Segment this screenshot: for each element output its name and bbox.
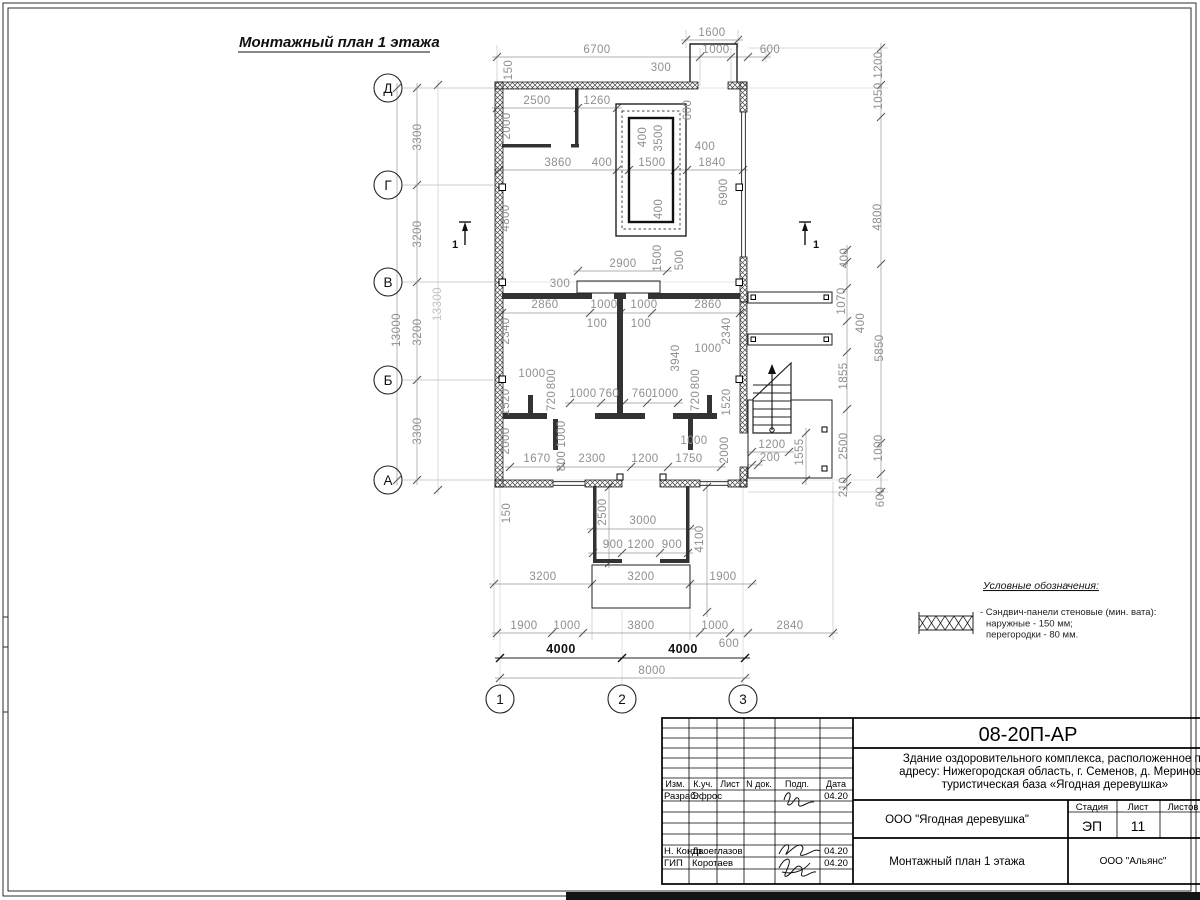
dimension-label: 1900 bbox=[510, 620, 537, 632]
dimension-label: 1000 bbox=[694, 343, 721, 355]
beams bbox=[748, 292, 832, 345]
titleblock-description-line1: Здание оздоровительного комплекса, распо… bbox=[903, 753, 1200, 765]
titleblock-name: Двоеглазов bbox=[692, 846, 743, 857]
dimension-label: 3200 bbox=[412, 220, 424, 247]
dimension-label: 400 bbox=[695, 141, 715, 153]
legend-item-line2: наружные - 150 мм; bbox=[986, 619, 1073, 630]
dimension-label: 400 bbox=[637, 127, 649, 147]
titleblock-date: 04.20 bbox=[824, 858, 848, 869]
dimension-label: 1000 bbox=[630, 299, 657, 311]
dimension-label: 1855 bbox=[838, 362, 850, 389]
dimension-labels: 1600670010006003002500126015020006004003… bbox=[391, 27, 887, 677]
dimension-label: 1200 bbox=[758, 439, 785, 451]
extension-lines bbox=[494, 30, 888, 640]
titleblock-col-list: Лист bbox=[720, 779, 740, 789]
dimension-label: 300 bbox=[550, 278, 570, 290]
dimension-label: 400 bbox=[653, 199, 665, 219]
dimension-label: 5850 bbox=[874, 334, 886, 361]
dimension-label: 4000 bbox=[546, 642, 575, 656]
section-mark-left: 1 bbox=[452, 222, 471, 251]
section-label: 1 bbox=[813, 239, 819, 251]
titleblock-name: Эфрос bbox=[692, 791, 722, 802]
dimension-label: 1200 bbox=[631, 453, 658, 465]
axis-letter: В bbox=[383, 275, 392, 290]
legend-item-line1: - Сэндвич-панели стеновые (мин. вата): bbox=[980, 607, 1156, 618]
titleblock-doc-name: Монтажный план 1 этажа bbox=[889, 856, 1025, 868]
dimension-label: 800 bbox=[546, 369, 558, 389]
dimension-label: 3200 bbox=[529, 571, 556, 583]
dimension-label: 1750 bbox=[675, 453, 702, 465]
dimension-label: 2900 bbox=[609, 258, 636, 270]
axis-marker-row: А bbox=[374, 466, 402, 494]
dimension-label: 6900 bbox=[718, 178, 730, 205]
sandwich-panel-swatch bbox=[919, 616, 973, 630]
dimension-label: 2340 bbox=[500, 317, 512, 344]
dimension-label: 2500 bbox=[597, 498, 609, 525]
dimension-label: 1000 bbox=[553, 620, 580, 632]
titleblock-description-line3: туристическая база «Ягодная деревушка» bbox=[942, 779, 1168, 791]
axis-letter: Б bbox=[384, 373, 393, 388]
dimension-label: 1000 bbox=[651, 388, 678, 400]
dimension-label: 300 bbox=[651, 62, 671, 74]
dimension-label: 2860 bbox=[531, 299, 558, 311]
titleblock-sheets-label: Листов bbox=[1168, 802, 1199, 813]
dimension-label: 1555 bbox=[794, 438, 806, 465]
dimension-label: 900 bbox=[603, 539, 623, 551]
page-title: Монтажный план 1 этажа bbox=[239, 34, 440, 51]
dimension-label: 1000 bbox=[702, 44, 729, 56]
dimension-label: 4800 bbox=[500, 204, 512, 231]
dimension-label: 1500 bbox=[638, 157, 665, 169]
dimension-label: 6700 bbox=[583, 44, 610, 56]
dimension-label: 3800 bbox=[627, 620, 654, 632]
axis-number: 1 bbox=[496, 692, 504, 707]
dimension-label: 1840 bbox=[698, 157, 725, 169]
dimension-label: 8000 bbox=[638, 665, 665, 677]
titleblock-col-izm: Изм. bbox=[665, 779, 684, 789]
sheet-edge-band bbox=[566, 892, 1200, 900]
dimension-label: 1000 bbox=[590, 299, 617, 311]
titleblock-company: ООО "Альянс" bbox=[1100, 856, 1167, 867]
dimension-label: 1500 bbox=[652, 244, 664, 271]
legend-heading: Условные обозначения: bbox=[982, 580, 1099, 592]
dimension-label: 1000 bbox=[518, 368, 545, 380]
dimension-label: 900 bbox=[662, 539, 682, 551]
dimension-label: 210 bbox=[838, 477, 850, 497]
dimension-label: 1900 bbox=[709, 571, 736, 583]
axis-lines bbox=[402, 88, 888, 685]
dimension-label: 3860 bbox=[544, 157, 571, 169]
dimension-label: 2840 bbox=[776, 620, 803, 632]
signature bbox=[779, 845, 820, 856]
floor-plan-drawing: Монтажный план 1 этажа bbox=[0, 0, 1200, 900]
axis-number: 3 bbox=[739, 692, 747, 707]
axis-letter: А bbox=[383, 473, 392, 488]
dimension-label: 1200 bbox=[627, 539, 654, 551]
section-label: 1 bbox=[452, 239, 458, 251]
signature bbox=[779, 859, 816, 876]
dimension-label: 1000 bbox=[680, 435, 707, 447]
dimension-label: 800 bbox=[556, 451, 568, 471]
counter-ledge bbox=[577, 281, 660, 293]
dimension-label: 3200 bbox=[412, 318, 424, 345]
section-mark-right: 1 bbox=[799, 222, 819, 251]
dimension-label: 100 bbox=[631, 318, 651, 330]
axis-marker-row: В bbox=[374, 268, 402, 296]
dimension-label: 760 bbox=[599, 388, 619, 400]
dimension-label: 2000 bbox=[501, 112, 513, 139]
titleblock-col-ndok: N док. bbox=[746, 779, 772, 789]
dimension-label: 3500 bbox=[653, 124, 665, 151]
axis-marker-row: Б bbox=[374, 366, 402, 394]
axis-letter: Д bbox=[383, 81, 392, 96]
dimension-label: 2860 bbox=[694, 299, 721, 311]
stair-direction-arrow bbox=[768, 364, 776, 374]
dimension-label: 800 bbox=[690, 369, 702, 389]
dimension-label: 2300 bbox=[578, 453, 605, 465]
titleblock-sheet-label: Лист bbox=[1128, 802, 1149, 813]
axis-marker-col: 1 bbox=[486, 685, 514, 713]
dimension-label: 4100 bbox=[694, 525, 706, 552]
dimension-label: 2500 bbox=[523, 95, 550, 107]
axis-letter: Г bbox=[384, 178, 392, 193]
dimension-label: 400 bbox=[592, 157, 612, 169]
signature bbox=[784, 793, 814, 806]
dimension-label: 100 bbox=[587, 318, 607, 330]
axis-marker-row: Г bbox=[374, 171, 402, 199]
titleblock-stage-value: ЭП bbox=[1082, 818, 1102, 834]
axis-number: 2 bbox=[618, 692, 626, 707]
dimension-label: 1000 bbox=[569, 388, 596, 400]
dimension-label: 600 bbox=[760, 44, 780, 56]
dimension-label: 2500 bbox=[838, 432, 850, 459]
titleblock-description-line2: адресу: Нижегородская область, г. Семено… bbox=[899, 766, 1200, 778]
dimension-label: 150 bbox=[503, 60, 515, 80]
dimension-label: 1200 bbox=[873, 51, 885, 78]
titleblock-sheet-value: 11 bbox=[1131, 818, 1146, 834]
axis-marker-col: 2 bbox=[608, 685, 636, 713]
dimension-label: 1000 bbox=[701, 620, 728, 632]
titleblock-col-data: Дата bbox=[826, 779, 846, 789]
drawing-title: Монтажный план 1 этажа bbox=[238, 34, 440, 52]
titleblock-date: 04.20 bbox=[824, 791, 848, 802]
dimension-label: 1520 bbox=[721, 388, 733, 415]
dimension-label: 400 bbox=[839, 248, 851, 268]
dimension-label: 1000 bbox=[556, 420, 568, 447]
dimension-label: 760 bbox=[632, 388, 652, 400]
titleblock-col-podp: Подп. bbox=[785, 779, 809, 789]
titleblock-date: 04.20 bbox=[824, 846, 848, 857]
title-block: 08-20П-АР Здание оздоровительного компле… bbox=[662, 718, 1200, 884]
staircase bbox=[753, 363, 791, 433]
dimension-label: 4000 bbox=[668, 642, 697, 656]
dimension-label: 3940 bbox=[670, 344, 682, 371]
dimension-label: 1520 bbox=[500, 388, 512, 415]
titleblock-col-kuch: К.уч. bbox=[693, 779, 712, 789]
dimension-label: 1260 bbox=[583, 95, 610, 107]
dimension-label: 2000 bbox=[719, 436, 731, 463]
titleblock-stage-label: Стадия bbox=[1076, 802, 1108, 813]
axis-marker-row: Д bbox=[374, 74, 402, 102]
dimension-label: 2000 bbox=[500, 427, 512, 454]
titleblock-code: 08-20П-АР bbox=[979, 724, 1078, 746]
dimension-label: 600 bbox=[875, 487, 887, 507]
dimension-label: 500 bbox=[674, 250, 686, 270]
dimension-label: 4800 bbox=[872, 203, 884, 230]
dimension-label: 13000 bbox=[391, 313, 403, 347]
dimension-label: 1000 bbox=[873, 434, 885, 461]
dimension-label: 3000 bbox=[629, 515, 656, 527]
dimension-label: 2340 bbox=[721, 317, 733, 344]
dimension-label: 3200 bbox=[627, 571, 654, 583]
legend: Условные обозначения: - Сэндвич-панели с… bbox=[919, 580, 1156, 641]
dimension-label: 1050 bbox=[873, 82, 885, 109]
dimension-label: 3300 bbox=[412, 417, 424, 444]
titleblock-role: ГИП bbox=[664, 858, 683, 869]
dimension-label: 3300 bbox=[412, 123, 424, 150]
axis-marker-col: 3 bbox=[729, 685, 757, 713]
titleblock-org: ООО "Ягодная деревушка" bbox=[885, 814, 1029, 826]
legend-item-line3: перегородки - 80 мм. bbox=[986, 630, 1078, 641]
titleblock-name: Коротаев bbox=[692, 858, 733, 869]
dimension-label: 1600 bbox=[698, 27, 725, 39]
dimension-label: 1070 bbox=[836, 287, 848, 314]
dimension-label: 13300 bbox=[432, 287, 444, 321]
dimension-label: 720 bbox=[690, 391, 702, 411]
dimension-label: 1670 bbox=[523, 453, 550, 465]
dimension-label: 400 bbox=[855, 313, 867, 333]
dimension-label: 600 bbox=[682, 100, 694, 120]
dimension-label: 200 bbox=[760, 452, 780, 464]
dimension-label: 150 bbox=[501, 503, 513, 523]
dimension-label: 720 bbox=[546, 391, 558, 411]
dimension-label: 600 bbox=[719, 638, 739, 650]
